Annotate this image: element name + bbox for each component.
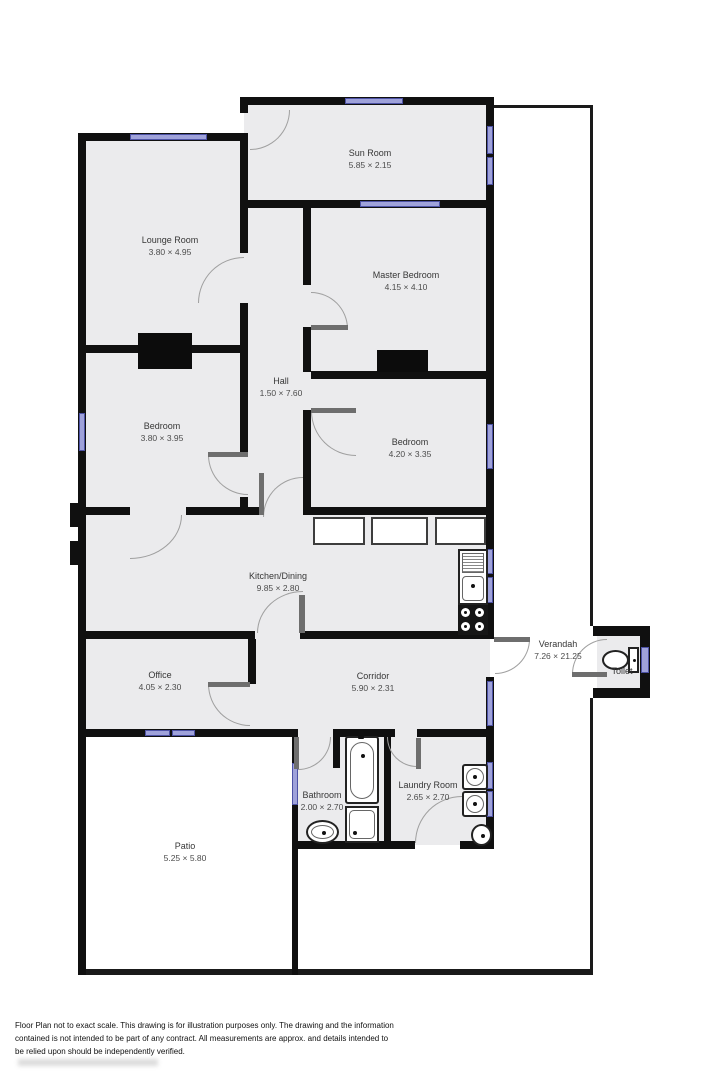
- room-label-toilet: Toilet: [611, 665, 632, 677]
- wall-kitchen-top-b: [186, 507, 263, 515]
- room-name: Bedroom: [141, 420, 184, 432]
- burner-icon: [461, 608, 470, 617]
- wall-kitchen-top-a: [86, 507, 130, 515]
- room-dims: 9.85 × 2.80: [249, 582, 307, 594]
- window-master-top: [360, 201, 440, 207]
- room-label-verandah: Verandah 7.26 × 21.25: [534, 638, 582, 662]
- door-leaf-bathroom: [294, 737, 299, 769]
- wall-stub-left-kitchen-b: [70, 541, 78, 565]
- shower: [345, 806, 379, 843]
- bathtub: [345, 736, 379, 804]
- room-label-office: Office 4.05 × 2.30: [139, 669, 182, 693]
- floor-plan-canvas: Sun Room 5.85 × 2.15 Lounge Room 3.80 × …: [0, 0, 720, 1080]
- room-dims: 7.26 × 21.25: [534, 650, 582, 662]
- room-label-sun-room: Sun Room 5.85 × 2.15: [349, 147, 392, 171]
- kitchen-sink-drainer: [462, 553, 484, 573]
- wall-left-exterior: [78, 133, 86, 975]
- door-leaf-kitchen-corridor: [299, 595, 305, 633]
- kitchen-sink: [458, 549, 488, 605]
- wall-sun-left-upper: [240, 97, 248, 113]
- wall-bedroom-hall-upper: [240, 353, 248, 455]
- window-sun-top: [345, 98, 403, 104]
- room-label-hall: Hall 1.50 × 7.60: [260, 375, 303, 399]
- room-name: Lounge Room: [142, 234, 199, 246]
- laundry-sink-drain: [481, 834, 485, 838]
- room-name: Laundry Room: [398, 779, 457, 791]
- room-label-patio: Patio 5.25 × 5.80: [164, 840, 207, 864]
- room-name: Toilet: [611, 665, 632, 677]
- kitchen-sink-bowl: [462, 576, 484, 601]
- wall-hall-right-a: [303, 205, 311, 285]
- room-name: Corridor: [352, 670, 395, 682]
- bathtub-inner: [350, 742, 374, 799]
- room-dims: 4.05 × 2.30: [139, 681, 182, 693]
- laundry-tub-tap: [473, 775, 477, 779]
- wall-kitchen-top-c: [303, 507, 486, 515]
- watermark-smudge: [18, 1059, 158, 1066]
- wall-kitchen-bottom-a: [78, 631, 255, 639]
- room-dims: 1.50 × 7.60: [260, 387, 303, 399]
- room-dims: 5.25 × 5.80: [164, 852, 207, 864]
- verandah-outline-right-lower: [590, 698, 593, 973]
- stove: [458, 605, 488, 635]
- laundry-tub-tap: [473, 802, 477, 806]
- laundry-sink: [471, 824, 492, 846]
- bathroom-sink-tap: [322, 831, 326, 835]
- door-leaf-hall-kitchen: [259, 473, 264, 515]
- bottom-boundary: [78, 969, 593, 975]
- window-toilet: [641, 647, 649, 673]
- wall-hall-right-b: [303, 327, 311, 372]
- kitchen-counter-c: [435, 517, 486, 545]
- window-bedroom-right: [487, 424, 493, 469]
- room-name: Hall: [260, 375, 303, 387]
- wall-bath-laundry-divider: [384, 737, 391, 841]
- window-sun-right-b: [487, 157, 493, 185]
- window-sun-right-a: [487, 126, 493, 154]
- kitchen-counter-a: [313, 517, 365, 545]
- toilet-button: [633, 659, 636, 662]
- bathtub-tap: [358, 731, 364, 739]
- chimney-master: [377, 350, 428, 372]
- room-label-bedroom-right: Bedroom 4.20 × 3.35: [389, 436, 432, 460]
- room-label-lounge: Lounge Room 3.80 × 4.95: [142, 234, 199, 258]
- burner-icon: [475, 622, 484, 631]
- room-label-bedroom-left: Bedroom 3.80 × 3.95: [141, 420, 184, 444]
- room-name: Patio: [164, 840, 207, 852]
- room-label-master: Master Bedroom 4.15 × 4.10: [373, 269, 440, 293]
- kitchen-counter-b: [371, 517, 428, 545]
- window-office-b: [172, 730, 195, 736]
- door-leaf-office: [208, 682, 250, 687]
- room-dims: 5.85 × 2.15: [349, 159, 392, 171]
- shower-drain: [353, 831, 357, 835]
- room-name: Master Bedroom: [373, 269, 440, 281]
- room-name: Sun Room: [349, 147, 392, 159]
- bathroom-sink: [306, 820, 339, 844]
- room-dims: 4.15 × 4.10: [373, 281, 440, 293]
- wall-hall-right-c: [303, 410, 311, 515]
- verandah-outline-right-upper: [590, 105, 593, 626]
- window-bedroom-left: [79, 413, 85, 451]
- laundry-tub-a: [462, 764, 488, 790]
- laundry-tub-b: [462, 791, 488, 817]
- bathtub-drain: [361, 754, 365, 758]
- door-leaf-corridor-verandah: [494, 637, 530, 642]
- window-lounge-top: [130, 134, 207, 140]
- wall-stub-left-kitchen-a: [70, 503, 78, 527]
- door-leaf-master: [311, 325, 348, 330]
- door-leaf-toilet: [572, 672, 607, 677]
- chimney-lounge: [138, 333, 192, 369]
- wall-office-right: [248, 639, 256, 684]
- room-label-laundry: Laundry Room 2.65 × 2.70: [398, 779, 457, 803]
- room-dims: 5.90 × 2.31: [352, 682, 395, 694]
- wall-bathroom-stub: [333, 737, 340, 768]
- room-dims: 2.65 × 2.70: [398, 791, 457, 803]
- wall-corridor-bottom-c: [417, 729, 494, 737]
- burner-icon: [461, 622, 470, 631]
- room-label-corridor: Corridor 5.90 × 2.31: [352, 670, 395, 694]
- room-label-bathroom: Bathroom 2.00 × 2.70: [301, 789, 344, 813]
- room-name: Bedroom: [389, 436, 432, 448]
- door-leaf-bedroom-right: [311, 408, 356, 413]
- room-dims: 3.80 × 3.95: [141, 432, 184, 444]
- door-arc-corridor-verandah: [495, 639, 530, 674]
- room-dims: 3.80 × 4.95: [142, 246, 199, 258]
- verandah-outline-top: [494, 105, 593, 108]
- window-office-a: [145, 730, 170, 736]
- room-label-kitchen: Kitchen/Dining 9.85 × 2.80: [249, 570, 307, 594]
- wall-master-south: [311, 371, 486, 379]
- room-dims: 2.00 × 2.70: [301, 801, 344, 813]
- room-fill-hall: [244, 204, 311, 515]
- wall-lounge-hall-upper: [240, 141, 248, 253]
- room-name: Kitchen/Dining: [249, 570, 307, 582]
- disclaimer-text: Floor Plan not to exact scale. This draw…: [15, 1019, 397, 1058]
- door-leaf-laundry: [416, 738, 421, 769]
- room-name: Bathroom: [301, 789, 344, 801]
- window-corridor: [487, 681, 493, 726]
- room-name: Office: [139, 669, 182, 681]
- kitchen-sink-tap: [471, 584, 475, 588]
- door-leaf-bedroom-left: [208, 452, 248, 457]
- room-dims: 4.20 × 3.35: [389, 448, 432, 460]
- room-name: Verandah: [534, 638, 582, 650]
- burner-icon: [475, 608, 484, 617]
